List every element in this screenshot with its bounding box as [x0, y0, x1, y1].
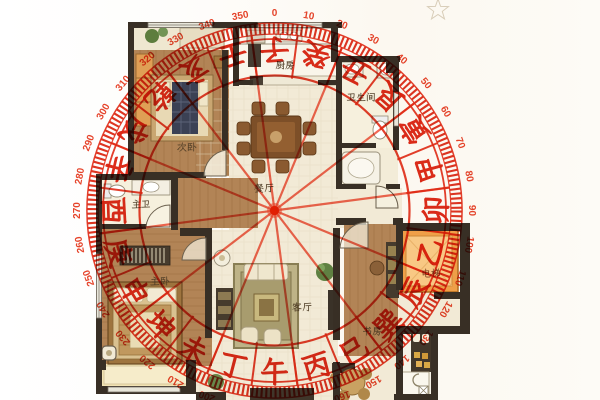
- svg-text:90: 90: [466, 205, 477, 217]
- svg-text:270: 270: [72, 202, 83, 219]
- svg-text:0: 0: [272, 8, 278, 19]
